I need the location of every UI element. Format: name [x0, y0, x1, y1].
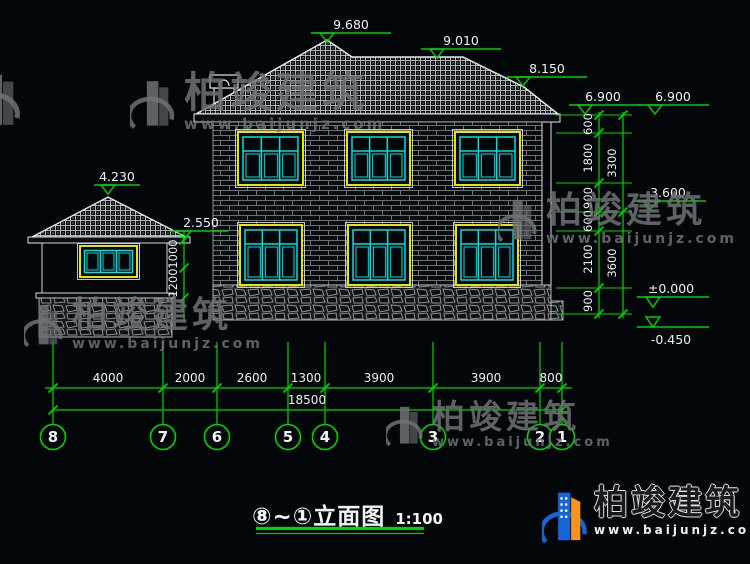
corner-trim — [542, 122, 551, 285]
main-stone-base-right — [551, 301, 563, 320]
main-roof — [196, 40, 558, 114]
dim-label: 900 — [581, 187, 595, 209]
elevation-triangle-icon — [578, 105, 592, 114]
elevation-marker: 4.230 — [94, 169, 140, 194]
axis-number: 4 — [320, 428, 330, 446]
title-underline — [256, 527, 424, 530]
dim-label: 1000 — [166, 239, 180, 268]
elevation-value: ±0.000 — [648, 281, 694, 296]
left-building-roof — [32, 197, 186, 237]
dim-label: 3900 — [471, 371, 502, 385]
main-window — [453, 130, 523, 188]
dim-label: 800 — [540, 371, 563, 385]
axis-bubble: 1 — [550, 424, 575, 450]
axis-bubble: 3 — [421, 424, 446, 450]
axis-number: 2 — [535, 428, 545, 446]
axis-number: 6 — [212, 428, 222, 446]
footer-brand-url: www.baijunjz.com — [594, 524, 750, 536]
elevation-value: 6.900 — [585, 89, 621, 104]
main-window — [238, 223, 305, 288]
dim-label: 4000 — [93, 371, 124, 385]
axis-number: 8 — [48, 428, 58, 446]
elevation-marker: ±0.000 — [637, 281, 709, 307]
left-building-window — [78, 244, 140, 280]
main-window — [236, 130, 306, 188]
dim-label: 600 — [581, 210, 595, 232]
drawing-title: ⑧~①立面图 1:100 — [252, 497, 443, 531]
elevation-marker: -0.450 — [637, 317, 709, 347]
left-building-sill-band — [36, 293, 174, 298]
axis-bubble: 7 — [151, 424, 176, 450]
main-window — [346, 223, 413, 288]
elevation-triangle-icon — [646, 317, 660, 327]
cad-canvas: 4000200026001300390039008001850010001200… — [0, 0, 750, 564]
dim-label: 3300 — [605, 148, 619, 177]
elevation-marker: 8.150 — [507, 61, 587, 86]
dim-label: 2600 — [237, 371, 268, 385]
footer-brand-logo: 柏竣建筑 www.baijunjz.com — [542, 486, 750, 560]
elevation-marker: 6.900 — [569, 89, 641, 114]
window-frame — [348, 225, 410, 285]
elevation-value: 9.680 — [333, 17, 369, 32]
elevation-triangle-icon — [646, 297, 660, 307]
main-window — [454, 223, 521, 288]
main-window — [345, 130, 413, 188]
elevation-value: 4.230 — [99, 169, 135, 184]
dim-label: 2000 — [175, 371, 206, 385]
elevation-marker: 3.600 — [634, 185, 706, 210]
dim-label: 18500 — [288, 393, 326, 407]
main-building — [194, 40, 563, 320]
axis-number: 1 — [557, 428, 567, 446]
elevation-triangle-icon — [101, 185, 115, 194]
elevation-marker: 6.900 — [639, 89, 709, 114]
elevation-value: -0.450 — [651, 332, 691, 347]
elevation-marker: 9.680 — [311, 17, 391, 42]
window-frame — [240, 225, 302, 285]
elevation-drawing: 4000200026001300390039008001850010001200… — [0, 0, 750, 564]
dim-label: 600 — [581, 113, 595, 135]
dim-label: 1200 — [166, 268, 180, 297]
title-underline — [256, 533, 424, 534]
elevation-marker: 9.010 — [421, 33, 501, 58]
title-scale: 1:100 — [395, 510, 443, 528]
axis-bubble: 4 — [313, 424, 338, 450]
main-stone-base — [213, 285, 551, 320]
axis-number: 3 — [428, 428, 438, 446]
elevation-value: 3.600 — [650, 185, 686, 200]
axis-bubble: 8 — [41, 424, 66, 450]
title-text: ⑧~①立面图 — [252, 497, 385, 531]
window-frame — [456, 225, 518, 285]
elevation-value: 6.900 — [655, 89, 691, 104]
axis-bubble: 5 — [276, 424, 301, 450]
axis-number: 5 — [283, 428, 293, 446]
elevation-triangle-icon — [643, 201, 657, 210]
dim-label: 2100 — [581, 244, 595, 273]
dim-label: 900 — [581, 290, 595, 312]
dim-label: 3600 — [605, 248, 619, 277]
elevation-value: 8.150 — [529, 61, 565, 76]
dim-label: 1800 — [581, 143, 595, 172]
dim-label: 1300 — [291, 371, 322, 385]
elevation-triangle-icon — [648, 105, 662, 114]
elevation-value: 2.550 — [183, 215, 219, 230]
axis-number: 7 — [158, 428, 168, 446]
dim-label: 3900 — [364, 371, 395, 385]
left-building-stone-base — [39, 298, 172, 337]
axis-bubble: 6 — [205, 424, 230, 450]
footer-brand-text: 柏竣建筑 — [594, 486, 750, 520]
brand-logo-icon — [542, 486, 588, 560]
elevation-value: 9.010 — [443, 33, 479, 48]
main-eave-band — [194, 114, 560, 122]
